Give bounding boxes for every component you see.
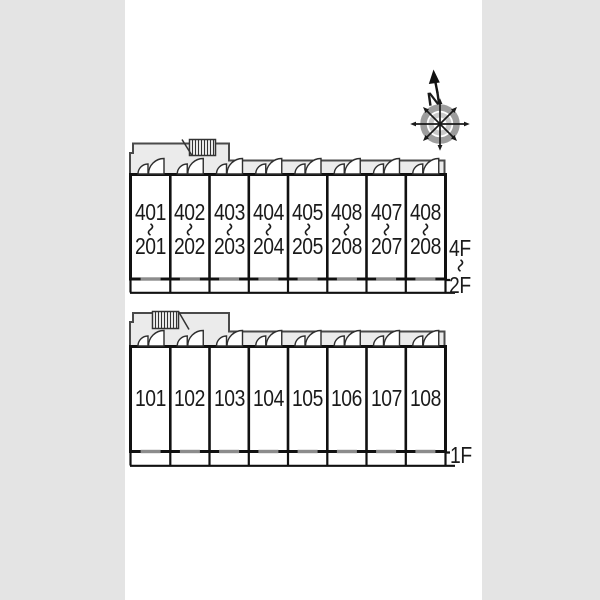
unit-number: 105 xyxy=(292,389,323,408)
unit-number-top: 404 xyxy=(253,203,284,222)
unit-number: 102 xyxy=(174,389,205,408)
unit-cell: 101 xyxy=(131,347,170,450)
floor-range-squiggle-icon xyxy=(455,259,466,272)
floor-label-4f: 4F xyxy=(449,239,471,258)
unit-cell: 105 xyxy=(288,347,327,450)
unit-number-bottom: 205 xyxy=(292,237,323,256)
unit-number: 106 xyxy=(331,389,362,408)
balcony-band xyxy=(131,452,451,466)
unit-number-bottom: 202 xyxy=(174,237,205,256)
unit-number-top: 402 xyxy=(174,203,205,222)
balcony-band xyxy=(131,279,451,293)
lower-units-row: 101 102 103 104 105 106 107 108 xyxy=(131,347,445,450)
unit-number-top: 403 xyxy=(214,203,245,222)
unit-cell: 108 xyxy=(406,347,445,450)
unit-cell: 107 xyxy=(367,347,406,450)
unit-number: 103 xyxy=(214,389,245,408)
unit-cell: 103 xyxy=(210,347,249,450)
unit-cell: 401 201 xyxy=(131,175,170,278)
unit-cell: 403 203 xyxy=(210,175,249,278)
unit-cell: 405 205 xyxy=(288,175,327,278)
floor-label-2f: 2F xyxy=(449,276,471,295)
unit-number: 104 xyxy=(253,389,284,408)
unit-number-bottom: 207 xyxy=(371,237,402,256)
north-label: N xyxy=(426,88,443,111)
unit-number-bottom: 204 xyxy=(253,237,284,256)
unit-number-top: 408 xyxy=(331,203,362,222)
unit-cell: 404 204 xyxy=(249,175,288,278)
unit-cell: 402 202 xyxy=(170,175,209,278)
unit-number-bottom: 208 xyxy=(410,237,441,256)
unit-number: 101 xyxy=(135,389,166,408)
unit-number-top: 407 xyxy=(371,203,402,222)
unit-number: 107 xyxy=(371,389,402,408)
floorplan-image: N 401 201 402 202 403 203 404 204 405 20… xyxy=(0,0,600,600)
unit-cell: 408 208 xyxy=(406,175,445,278)
unit-number-bottom: 201 xyxy=(135,237,166,256)
upper-units-row: 401 201 402 202 403 203 404 204 405 205 … xyxy=(131,175,445,278)
unit-number-top: 408 xyxy=(410,203,441,222)
unit-number: 108 xyxy=(410,389,441,408)
unit-cell: 106 xyxy=(327,347,366,450)
unit-number-top: 405 xyxy=(292,203,323,222)
unit-number-bottom: 208 xyxy=(331,237,362,256)
unit-cell: 102 xyxy=(170,347,209,450)
unit-number-bottom: 203 xyxy=(214,237,245,256)
floorplan-linework: N xyxy=(0,0,600,600)
floor-label-1f: 1F xyxy=(450,446,472,465)
unit-cell: 408 208 xyxy=(327,175,366,278)
unit-number-top: 401 xyxy=(135,203,166,222)
unit-cell: 407 207 xyxy=(367,175,406,278)
unit-cell: 104 xyxy=(249,347,288,450)
